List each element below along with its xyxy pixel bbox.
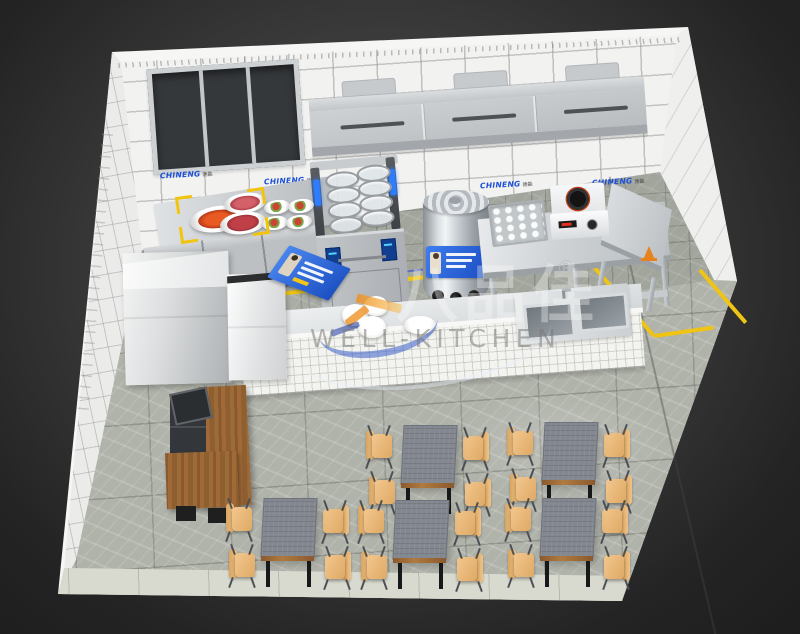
chair-leg — [622, 533, 628, 544]
chair-leg — [461, 460, 467, 471]
table-leg — [266, 561, 270, 587]
label-text-line — [446, 259, 472, 262]
bowl-food — [289, 216, 308, 228]
dining-chair — [603, 546, 630, 588]
induction-burner-ring — [563, 184, 593, 214]
dining-chair — [361, 546, 388, 588]
chair-seat — [511, 507, 531, 531]
table-top — [392, 500, 449, 560]
pot-brand-label — [426, 246, 486, 278]
chair-seat — [364, 509, 384, 533]
cashier-foot — [176, 506, 196, 521]
chair-leg — [228, 577, 234, 588]
chair-leg — [387, 458, 393, 469]
chair-leg — [357, 533, 363, 544]
dining-chair — [508, 544, 535, 586]
chair-seat — [325, 555, 345, 579]
wall-brand-name-cn: 驰能 — [202, 171, 212, 179]
banner-accent — [292, 277, 309, 286]
focus-bracket-tr — [247, 187, 266, 206]
chair-leg — [602, 579, 608, 590]
chair-seat — [604, 555, 624, 579]
dining-chair — [366, 425, 393, 467]
dining-chair — [462, 427, 489, 469]
chair-leg — [485, 506, 491, 517]
double-sink — [514, 283, 632, 345]
dining-chair — [324, 546, 351, 588]
ice-machine-seam — [124, 315, 230, 320]
chair-seat — [602, 509, 622, 533]
steam-tray — [488, 199, 549, 248]
chair-leg — [360, 579, 366, 590]
chair-leg — [455, 581, 461, 592]
dining-table-group — [358, 500, 482, 596]
white-dish — [364, 296, 388, 316]
cabinet-seam — [228, 325, 286, 328]
chair-leg — [526, 531, 532, 542]
chair-leg — [483, 460, 489, 471]
table-leg — [398, 563, 402, 589]
dining-table-group — [505, 498, 629, 594]
chair-seat — [232, 507, 252, 531]
chair-seat — [513, 431, 533, 455]
chair-leg — [602, 457, 608, 468]
upright-cabinet — [227, 274, 287, 381]
dining-chair — [229, 544, 256, 586]
hood-filter-slot — [452, 113, 516, 121]
table-leg — [307, 561, 311, 587]
dining-chair — [507, 422, 534, 464]
hood-filter-slot — [564, 106, 628, 114]
chair-leg — [624, 579, 630, 590]
noodle-cooker-handle — [338, 255, 386, 262]
chair-leg — [507, 577, 513, 588]
chair-leg — [247, 531, 253, 542]
table-leg — [646, 277, 657, 311]
white-dish — [358, 316, 386, 338]
dining-chair — [358, 500, 385, 542]
kitchen-3d-render: 八品佳 ® WELL-KITCHEN CHINENG驰能CHINENG驰能CHI… — [0, 0, 800, 634]
bowl-food — [267, 201, 286, 213]
chair-leg — [528, 455, 534, 466]
dining-table-group — [226, 498, 350, 594]
sink-basin — [576, 292, 629, 332]
table-top — [541, 422, 598, 482]
chair-leg — [365, 458, 371, 469]
chair-leg — [250, 577, 256, 588]
induction-body — [550, 210, 610, 240]
focus-bracket-bl — [179, 225, 198, 244]
chair-seat — [457, 557, 477, 581]
window-mullion — [245, 67, 256, 163]
chair-leg — [343, 533, 349, 544]
chair-seat — [372, 434, 392, 458]
chair-leg — [600, 533, 606, 544]
chair-leg — [529, 577, 535, 588]
noodle-cooker-screen — [313, 180, 321, 206]
chair-leg — [321, 533, 327, 544]
chair-seat — [604, 433, 624, 457]
hood-filter-slot — [340, 121, 404, 129]
chair-leg — [225, 531, 231, 542]
label-person-photo — [430, 252, 441, 274]
pot-lid-handle — [449, 197, 461, 204]
table-top — [260, 498, 317, 558]
faucet — [562, 289, 566, 299]
induction-display — [558, 220, 576, 228]
wall-brand-name-cn: 驰能 — [634, 178, 644, 186]
chair-leg — [506, 455, 512, 466]
wall-brand-name-cn: 驰能 — [522, 181, 532, 189]
dining-chair — [226, 498, 253, 540]
chair-leg — [345, 579, 351, 590]
white-plate-stack — [404, 316, 436, 334]
dining-chair — [454, 502, 481, 544]
table-leg — [545, 561, 549, 587]
table-leg — [586, 561, 590, 587]
window-mullion — [199, 71, 210, 167]
chair-leg — [475, 535, 481, 546]
bowl-food — [291, 200, 310, 212]
label-text-line — [446, 253, 476, 256]
hood-divider — [533, 96, 538, 132]
table-top — [400, 425, 457, 485]
chair-leg — [624, 457, 630, 468]
chair-leg — [379, 533, 385, 544]
chair-leg — [477, 581, 483, 592]
induction-knob — [586, 219, 598, 231]
dining-chair — [603, 424, 630, 466]
chair-seat — [235, 553, 255, 577]
dining-chair — [456, 548, 483, 590]
ice-machine-top — [122, 251, 229, 290]
table-top — [539, 498, 596, 558]
noodle-basket — [360, 208, 395, 228]
chair-seat — [367, 555, 387, 579]
chair-leg — [323, 579, 329, 590]
label-text-line — [446, 265, 466, 268]
sink-basin — [523, 301, 576, 341]
dining-chair — [322, 500, 349, 542]
safety-cone — [643, 246, 655, 260]
induction-cooker — [548, 182, 610, 248]
dining-chair — [601, 500, 628, 542]
chair-seat — [323, 509, 343, 533]
dining-chair — [505, 498, 532, 540]
chair-seat — [455, 511, 475, 535]
chair-leg — [504, 531, 510, 542]
hood-divider — [421, 104, 426, 140]
three-pane-window — [146, 59, 305, 175]
ice-machine — [122, 251, 231, 386]
focus-bracket-br — [251, 217, 270, 236]
chair-leg — [453, 535, 459, 546]
chair-leg — [382, 579, 388, 590]
chair-seat — [463, 436, 483, 460]
chair-seat — [514, 553, 534, 577]
table-leg — [439, 563, 443, 589]
focus-bracket-tl — [175, 195, 194, 214]
